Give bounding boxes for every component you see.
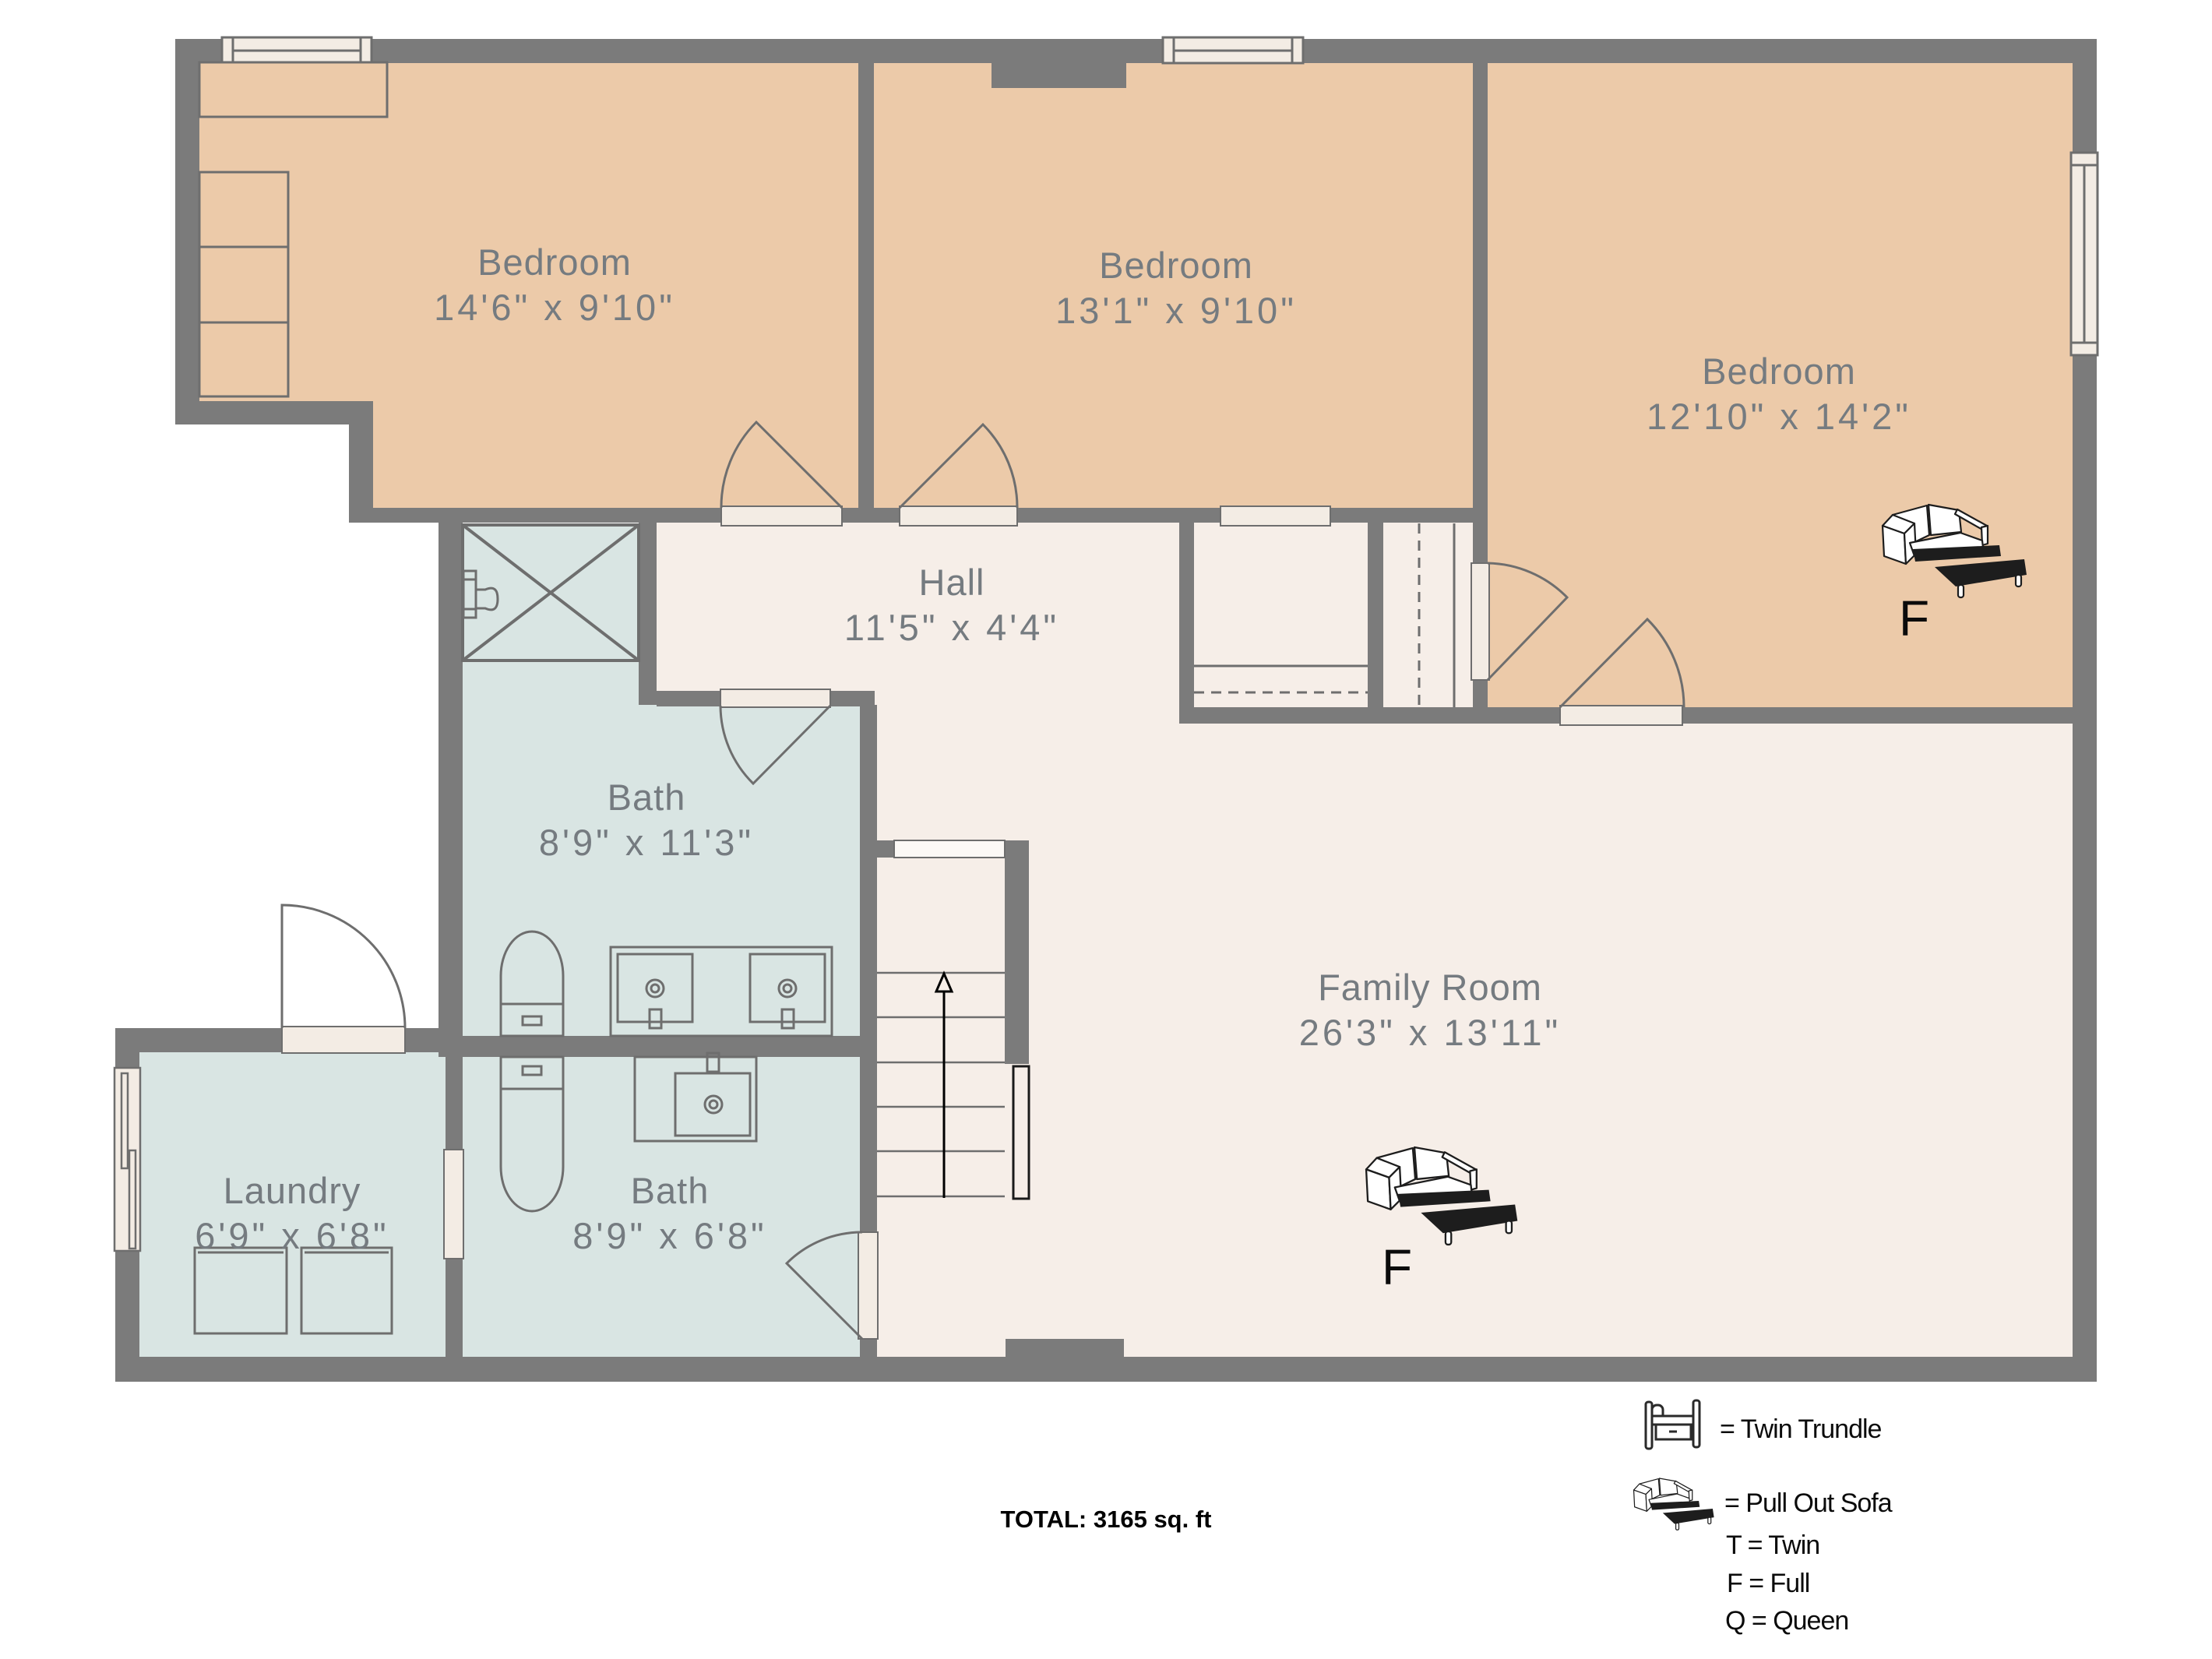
svg-text:Bedroom: Bedroom [477, 241, 632, 283]
svg-text:Family Room: Family Room [1318, 967, 1542, 1008]
svg-text:Bedroom: Bedroom [1702, 350, 1856, 392]
svg-text:F: F [1382, 1239, 1412, 1295]
svg-text:Bath: Bath [608, 777, 686, 818]
svg-text:Bath: Bath [631, 1170, 710, 1211]
svg-text:Hall: Hall [919, 562, 985, 603]
svg-text:14'6" x 9'10": 14'6" x 9'10" [434, 287, 675, 328]
svg-text:TOTAL: 3165 sq. ft: TOTAL: 3165 sq. ft [1000, 1506, 1211, 1533]
svg-text:11'5" x 4'4": 11'5" x 4'4" [844, 607, 1059, 648]
svg-text:8'9" x 11'3": 8'9" x 11'3" [539, 822, 754, 863]
svg-text:Bedroom: Bedroom [1099, 245, 1253, 286]
svg-text:= Twin Trundle: = Twin Trundle [1720, 1414, 1882, 1444]
svg-text:Laundry: Laundry [224, 1170, 361, 1211]
svg-text:8'9" x 6'8": 8'9" x 6'8" [572, 1215, 767, 1256]
svg-text:26'3" x 13'11": 26'3" x 13'11" [1299, 1012, 1561, 1053]
svg-text:= Pull Out Sofa: = Pull Out Sofa [1724, 1488, 1893, 1518]
svg-text:12'10" x 14'2": 12'10" x 14'2" [1647, 396, 1911, 437]
svg-text:13'1" x 9'10": 13'1" x 9'10" [1055, 290, 1297, 331]
svg-text:Q = Queen: Q = Queen [1725, 1606, 1848, 1636]
svg-text:F = Full: F = Full [1727, 1569, 1809, 1598]
svg-text:T = Twin: T = Twin [1726, 1530, 1819, 1560]
svg-text:F: F [1899, 590, 1929, 646]
svg-text:6'9" x 6'8": 6'9" x 6'8" [195, 1215, 389, 1256]
